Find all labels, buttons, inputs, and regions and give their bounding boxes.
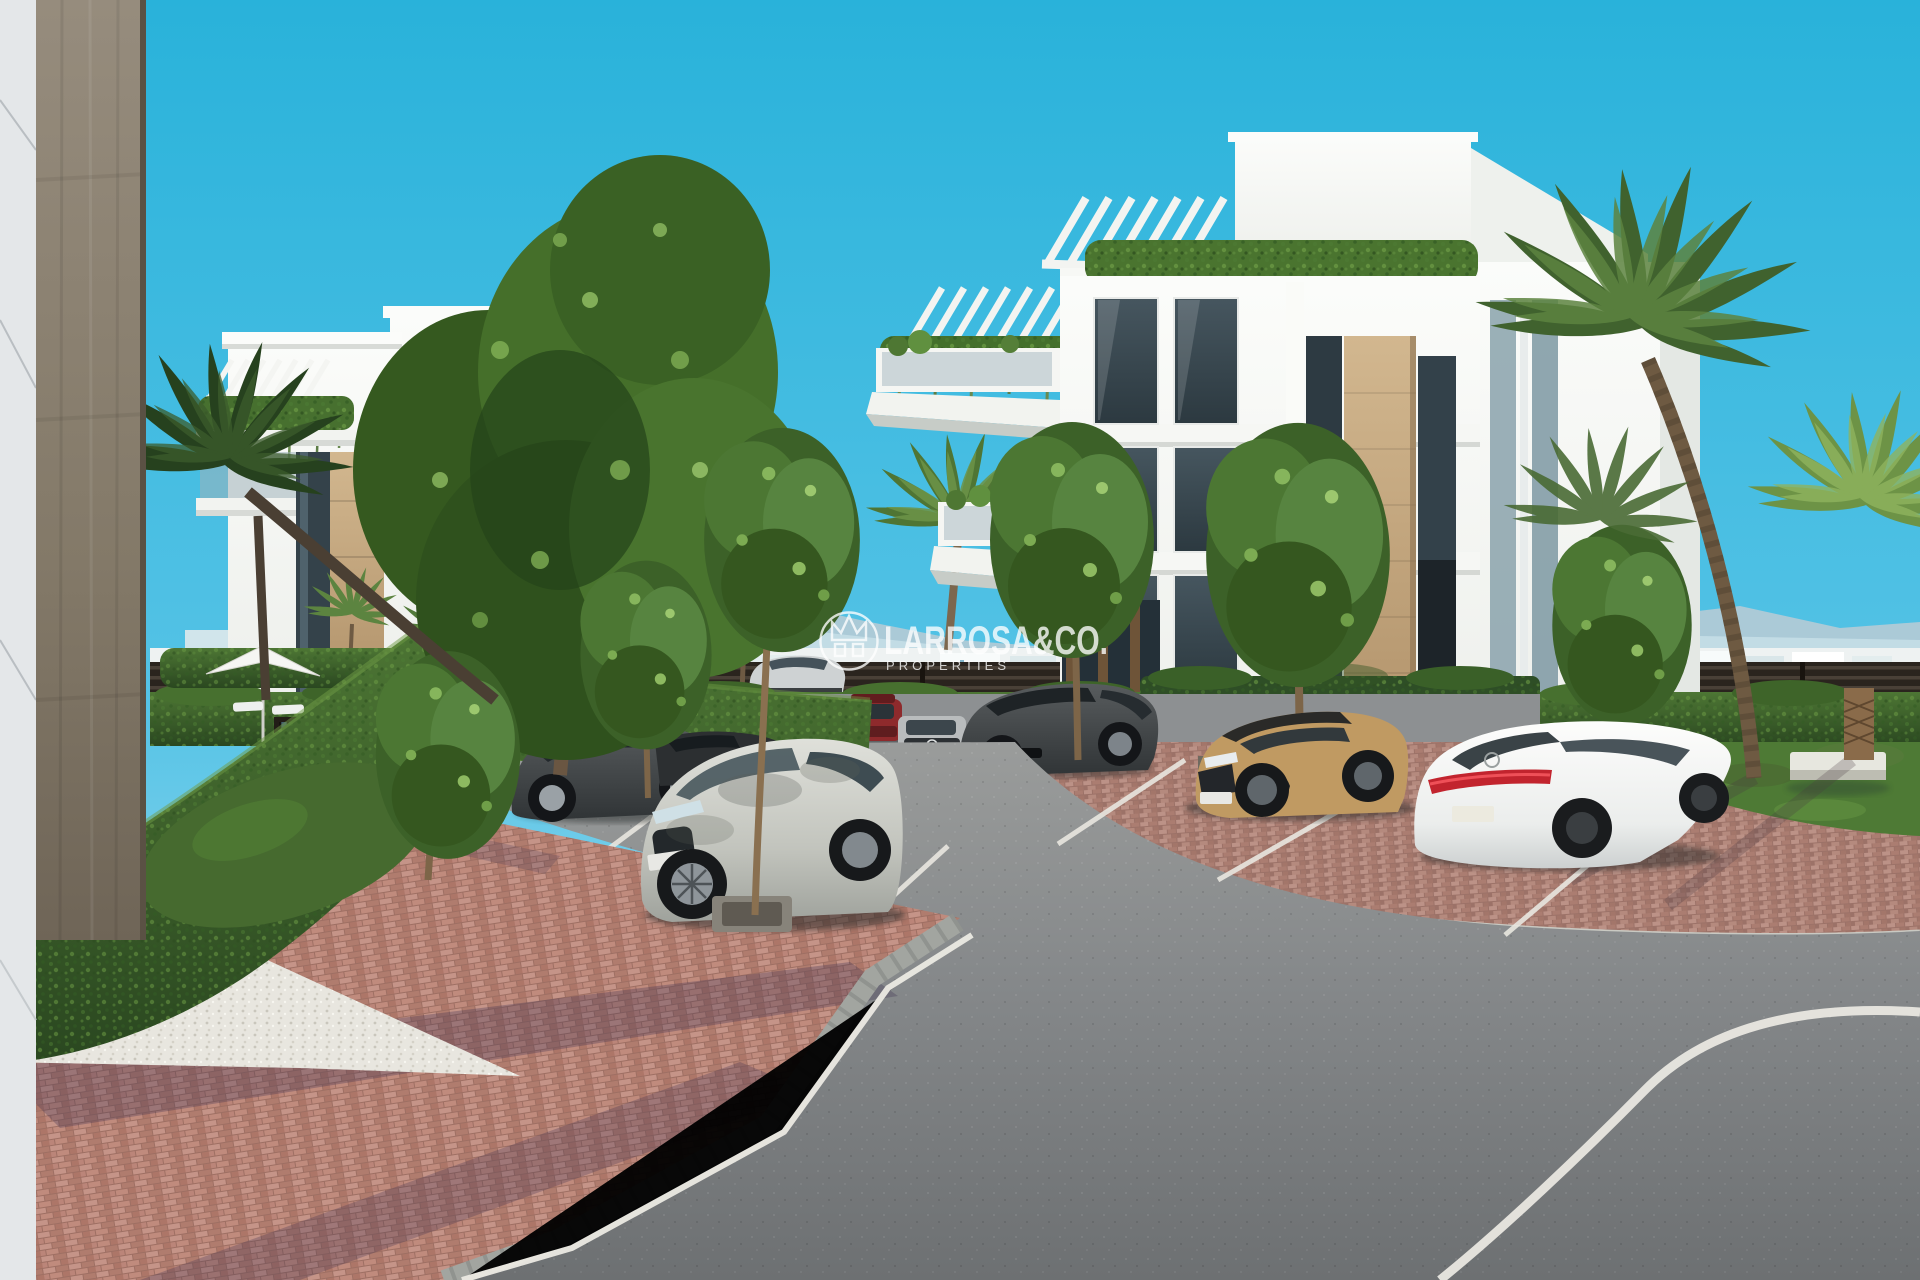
white-mercedes-sedan <box>1414 721 1731 871</box>
render-scene: LARROSA&CO. PROPERTIES <box>0 0 1920 1280</box>
watermark-brand: LARROSA&CO. <box>884 619 1108 663</box>
architectural-render-image: LARROSA&CO. PROPERTIES <box>0 0 1920 1280</box>
watermark-tagline: PROPERTIES <box>886 658 1006 673</box>
cladding-panel <box>0 0 36 1280</box>
